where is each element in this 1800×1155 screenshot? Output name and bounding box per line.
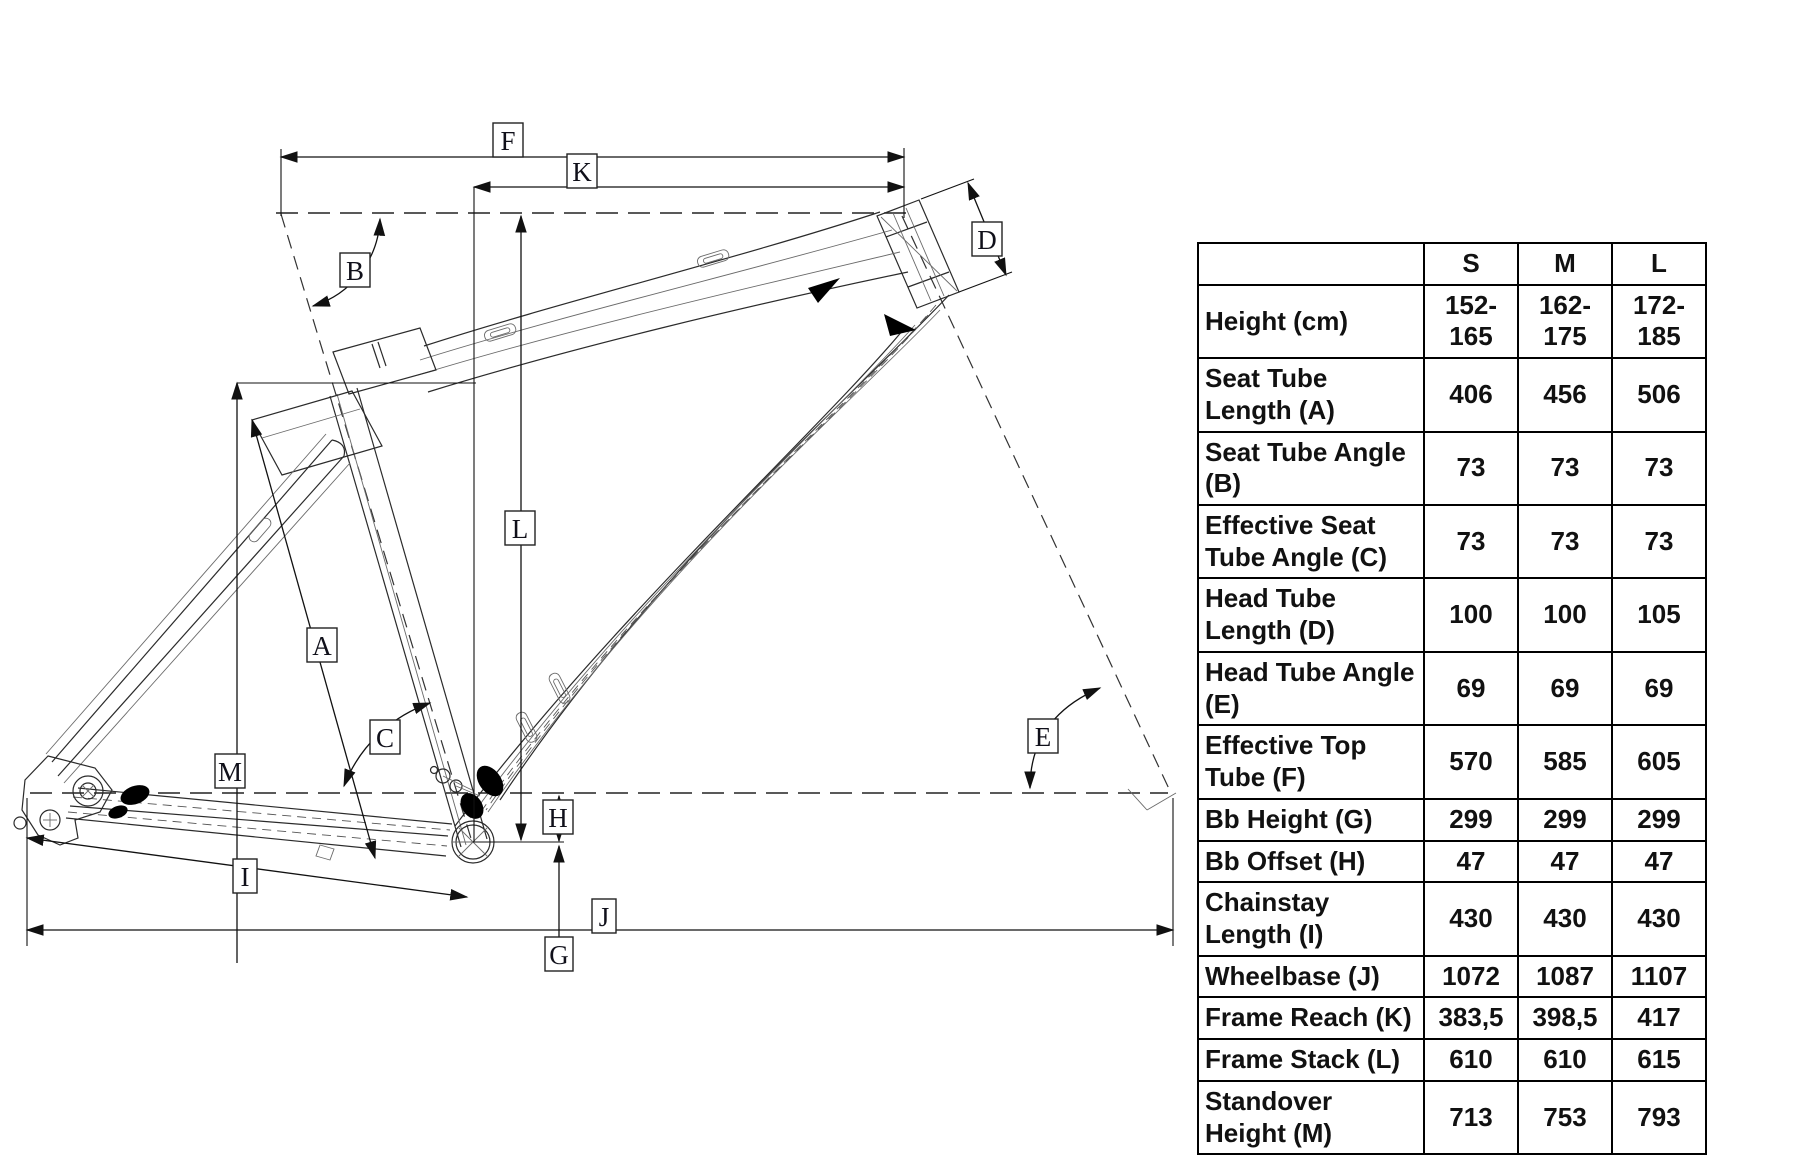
row-value: 299: [1518, 799, 1612, 841]
row-value: 69: [1518, 652, 1612, 725]
row-label: Wheelbase (J): [1198, 956, 1424, 998]
row-label: Frame Reach (K): [1198, 997, 1424, 1039]
row-value: 69: [1424, 652, 1518, 725]
dim-E: E: [1028, 688, 1100, 788]
row-value: 73: [1612, 505, 1706, 578]
row-value: 610: [1424, 1039, 1518, 1081]
row-value: 73: [1424, 505, 1518, 578]
row-value: 100: [1518, 578, 1612, 651]
row-label: Standover Height (M): [1198, 1081, 1424, 1154]
table-corner-cell: [1198, 243, 1424, 285]
row-value: 1072: [1424, 956, 1518, 998]
row-value: 793: [1612, 1081, 1706, 1154]
row-value: 398,5: [1518, 997, 1612, 1039]
dim-label-B: B: [346, 256, 364, 286]
column-header-S: S: [1424, 243, 1518, 285]
row-value: 430: [1424, 882, 1518, 955]
table-row: Bb Height (G)299299299: [1198, 799, 1706, 841]
row-value: 73: [1518, 505, 1612, 578]
top-tube: [418, 212, 908, 392]
row-value: 456: [1518, 358, 1612, 431]
dim-G: G: [545, 846, 573, 971]
head-tube: [877, 200, 959, 308]
table-row: Wheelbase (J)107210871107: [1198, 956, 1706, 998]
table-row: Frame Stack (L)610610615: [1198, 1039, 1706, 1081]
row-value: 430: [1612, 882, 1706, 955]
row-value: 172-185: [1612, 285, 1706, 358]
row-value: 1087: [1518, 956, 1612, 998]
row-value: 73: [1424, 432, 1518, 505]
table-row: Effective Top Tube (F)570585605: [1198, 725, 1706, 798]
row-value: 753: [1518, 1081, 1612, 1154]
row-label: Bb Height (G): [1198, 799, 1424, 841]
table-row: Chainstay Length (I)430430430: [1198, 882, 1706, 955]
down-tube: [455, 295, 949, 826]
row-value: 615: [1612, 1039, 1706, 1081]
row-value: 47: [1424, 841, 1518, 883]
row-value: 610: [1518, 1039, 1612, 1081]
row-label: Effective Seat Tube Angle (C): [1198, 505, 1424, 578]
row-value: 152-165: [1424, 285, 1518, 358]
dim-label-D: D: [977, 225, 997, 255]
table-row: Head Tube Length (D)100100105: [1198, 578, 1706, 651]
table-row: Head Tube Angle (E)696969: [1198, 652, 1706, 725]
row-value: 506: [1612, 358, 1706, 431]
row-value: 299: [1612, 799, 1706, 841]
column-header-L: L: [1612, 243, 1706, 285]
dim-L: L: [473, 216, 564, 842]
row-value: 100: [1424, 578, 1518, 651]
row-value: 47: [1518, 841, 1612, 883]
row-label: Height (cm): [1198, 285, 1424, 358]
row-label: Seat Tube Angle (B): [1198, 432, 1424, 505]
dim-label-F: F: [500, 126, 515, 156]
row-value: 73: [1612, 432, 1706, 505]
row-value: 162-175: [1518, 285, 1612, 358]
dim-label-J: J: [599, 902, 610, 932]
dim-H: H: [543, 796, 573, 841]
dim-label-K: K: [572, 157, 592, 187]
table-row: Frame Reach (K)383,5398,5417: [1198, 997, 1706, 1039]
row-value: 713: [1424, 1081, 1518, 1154]
row-label: Effective Top Tube (F): [1198, 725, 1424, 798]
table-row: Seat Tube Angle (B)737373: [1198, 432, 1706, 505]
row-value: 430: [1518, 882, 1612, 955]
row-label: Head Tube Length (D): [1198, 578, 1424, 651]
table-row: Effective Seat Tube Angle (C)737373: [1198, 505, 1706, 578]
table-header-row: S M L: [1198, 243, 1706, 285]
row-value: 417: [1612, 997, 1706, 1039]
row-label: Frame Stack (L): [1198, 1039, 1424, 1081]
dim-label-M: M: [218, 757, 242, 787]
row-value: 105: [1612, 578, 1706, 651]
front-derailleur-mount: [431, 761, 509, 823]
dim-label-H: H: [548, 803, 568, 833]
geometry-table: S M L Height (cm)152-165162-175172-185Se…: [1197, 242, 1707, 1155]
row-label: Chainstay Length (I): [1198, 882, 1424, 955]
dim-label-G: G: [549, 940, 569, 970]
dim-label-C: C: [376, 723, 394, 753]
row-value: 299: [1424, 799, 1518, 841]
row-value: 73: [1518, 432, 1612, 505]
column-header-M: M: [1518, 243, 1612, 285]
row-value: 47: [1612, 841, 1706, 883]
rear-dropout: [14, 756, 152, 845]
row-value: 406: [1424, 358, 1518, 431]
dim-J: J: [27, 798, 1173, 946]
dim-I: I: [27, 838, 467, 897]
dim-C: C: [344, 703, 430, 786]
row-value: 585: [1518, 725, 1612, 798]
row-value: 570: [1424, 725, 1518, 798]
dim-B: B: [313, 219, 380, 306]
table-row: Standover Height (M)713753793: [1198, 1081, 1706, 1154]
row-value: 69: [1612, 652, 1706, 725]
table-row: Height (cm)152-165162-175172-185: [1198, 285, 1706, 358]
seat-tube: [330, 388, 487, 847]
row-value: 605: [1612, 725, 1706, 798]
dim-label-L: L: [512, 514, 529, 544]
centerline-arrows: [808, 278, 916, 336]
dim-label-A: A: [312, 631, 332, 661]
row-label: Seat Tube Length (A): [1198, 358, 1424, 431]
row-label: Bb Offset (H): [1198, 841, 1424, 883]
row-value: 383,5: [1424, 997, 1518, 1039]
table-row: Seat Tube Length (A)406456506: [1198, 358, 1706, 431]
dim-label-I: I: [241, 862, 250, 892]
row-label: Head Tube Angle (E): [1198, 652, 1424, 725]
row-value: 1107: [1612, 956, 1706, 998]
table-row: Bb Offset (H)474747: [1198, 841, 1706, 883]
dim-label-E: E: [1035, 722, 1052, 752]
